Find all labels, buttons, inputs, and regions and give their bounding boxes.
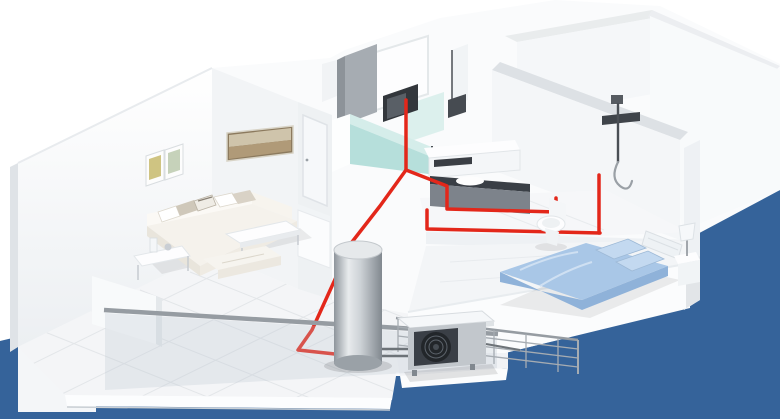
wash-basin — [456, 177, 484, 186]
render-canvas — [0, 0, 780, 419]
table-lamp — [679, 223, 695, 241]
counter-end-panel — [332, 114, 350, 172]
shower-mixer — [611, 95, 623, 104]
fan-hub — [433, 344, 439, 350]
upper-cabinet-white — [322, 60, 337, 102]
left-wall-edge — [10, 163, 18, 352]
unit-leg — [412, 370, 417, 376]
cylinder-top — [334, 241, 382, 259]
cylinder-base — [334, 355, 382, 371]
toilet-seat — [542, 218, 560, 228]
art-canvas-yellow — [149, 155, 161, 180]
upper-cabinet-gray — [345, 44, 377, 124]
nightstand — [678, 260, 700, 286]
art-canvas-green — [168, 149, 180, 174]
cylinder-body — [334, 250, 382, 364]
apartment-3d-render — [0, 0, 780, 419]
table-decor — [165, 244, 172, 251]
door-handle — [306, 159, 309, 162]
unit-leg — [470, 364, 475, 370]
table-decor-lamp — [150, 238, 157, 252]
